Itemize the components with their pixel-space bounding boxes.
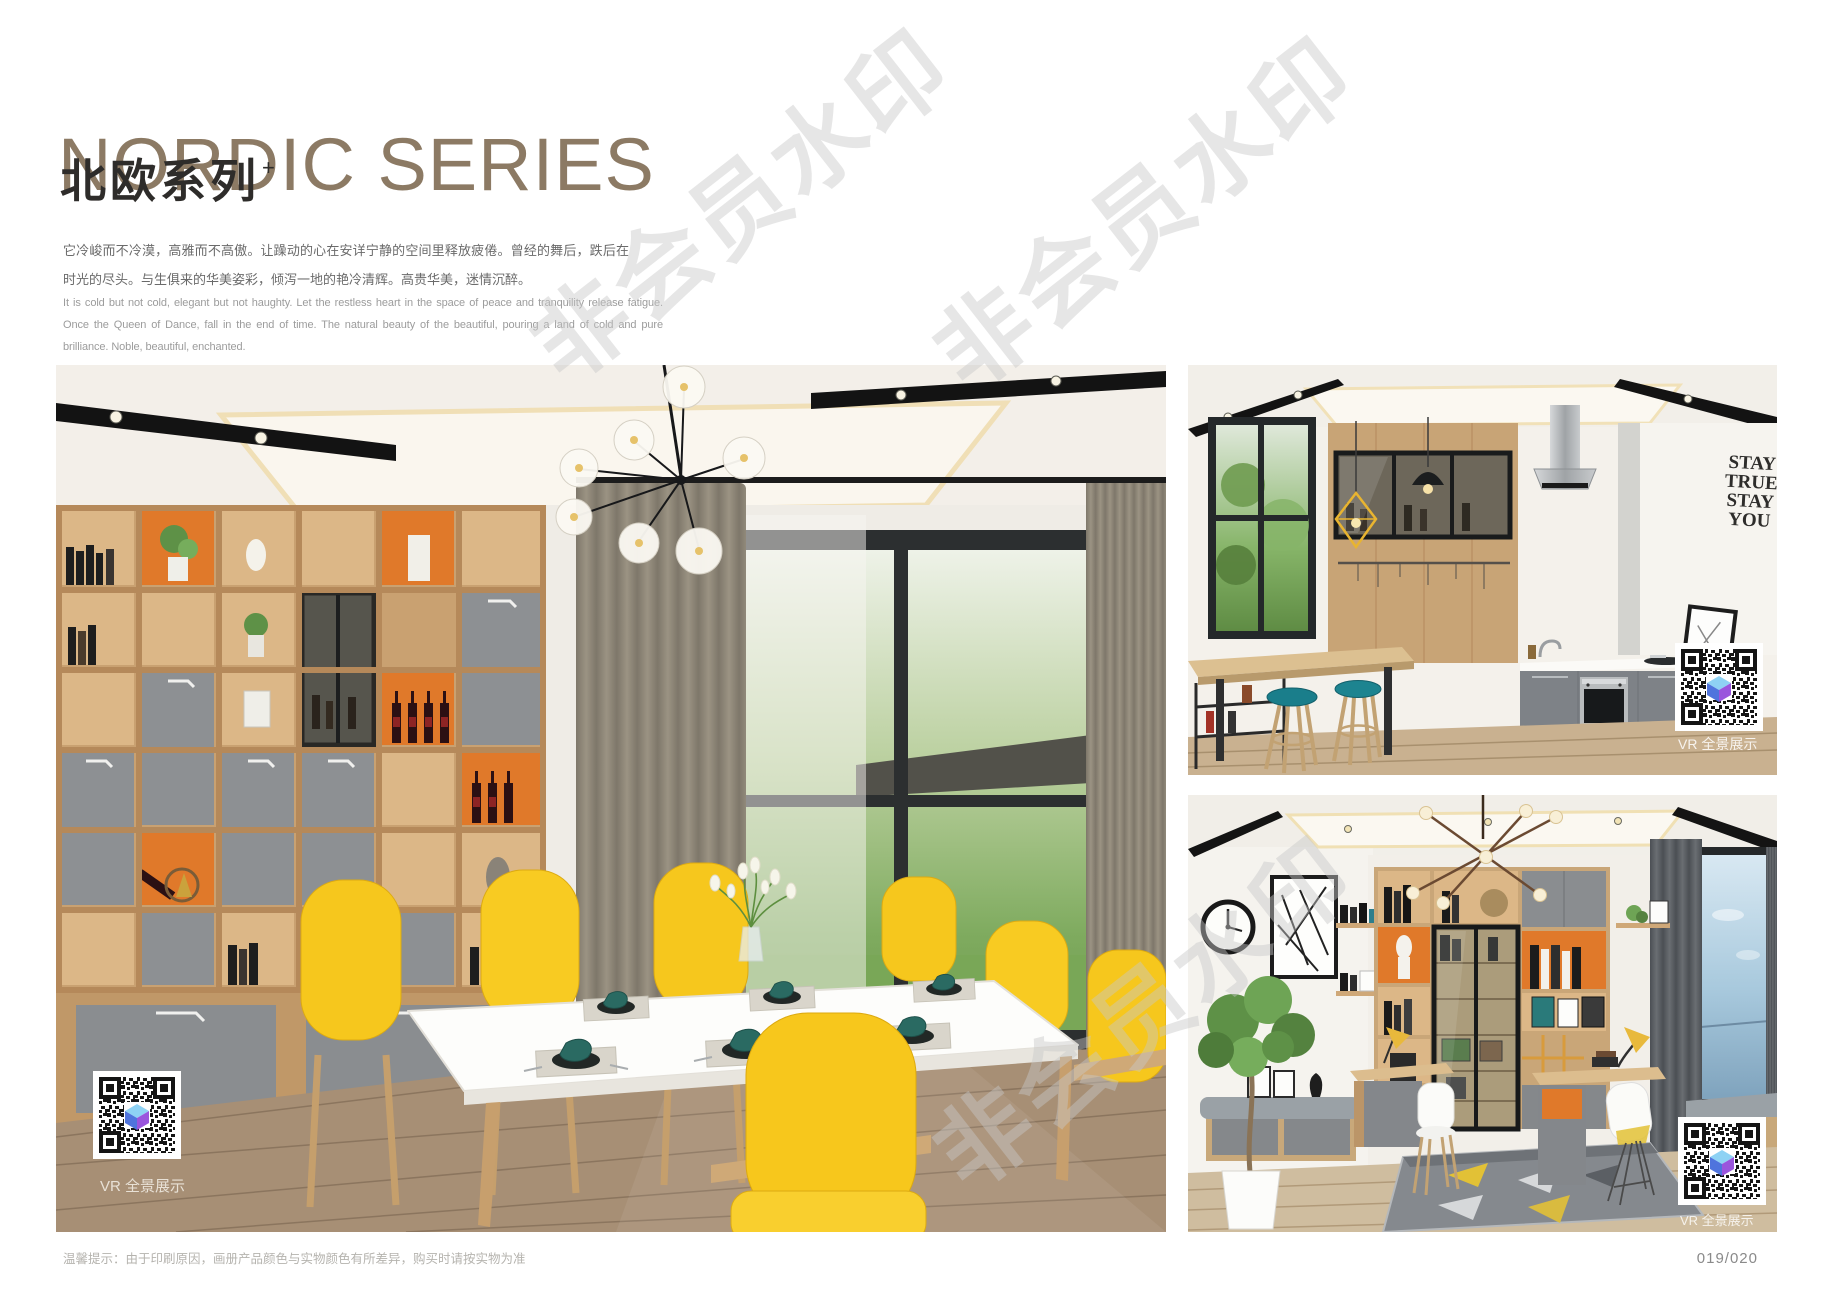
wall-sign-stay-true: STAY TRUE STAY YOU	[1722, 452, 1777, 533]
kitchen-photo: STAY TRUE STAY YOU	[1188, 365, 1777, 775]
svg-text:YOU: YOU	[1728, 509, 1772, 532]
title-cn-text: 北欧系列	[60, 155, 260, 207]
wall-clock	[1203, 902, 1253, 952]
print-disclaimer: 温馨提示：由于印刷原因，画册产品颜色与实物颜色有所差异，购买时请按实物为准	[63, 1248, 526, 1267]
qr-code	[1678, 1117, 1766, 1205]
vr-label: VR 全景展示	[100, 1177, 185, 1195]
kitchen-glass-cabinet	[1336, 453, 1510, 537]
spotlight	[896, 390, 906, 400]
kitchen-window	[1208, 417, 1316, 639]
study-window	[1693, 847, 1777, 1107]
qr-code	[93, 1071, 181, 1159]
page-number: 019/020	[1697, 1250, 1758, 1267]
vr-label: VR 全景展示	[1678, 736, 1757, 752]
spotlight	[1051, 376, 1061, 386]
vr-label: VR 全景展示	[1680, 1213, 1754, 1228]
qr-code	[1675, 643, 1763, 731]
intro-paragraph-english: It is cold but not cold, elegant but not…	[63, 292, 663, 358]
title-plus-superscript: +	[262, 155, 279, 180]
spotlight	[110, 411, 122, 423]
catalog-page: NORDIC SERIES 北欧系列+ 它冷峻而不冷漠，高雅而不高傲。让躁动的心…	[0, 0, 1836, 1307]
study-room-photo: VR 全景展示	[1188, 795, 1777, 1232]
spotlight	[255, 432, 267, 444]
study-curtain-right	[1766, 847, 1777, 1129]
dining-room-photo: VR 全景展示	[56, 365, 1166, 1232]
page-title-chinese: 北欧系列+	[60, 158, 277, 204]
watermark-text: 非会员水印	[901, 0, 1379, 416]
intro-paragraph-chinese: 它冷峻而不冷漠，高雅而不高傲。让躁动的心在安详宁静的空间里释放疲倦。曾经的舞后，…	[63, 236, 629, 294]
abstract-art-frame	[1272, 877, 1336, 977]
